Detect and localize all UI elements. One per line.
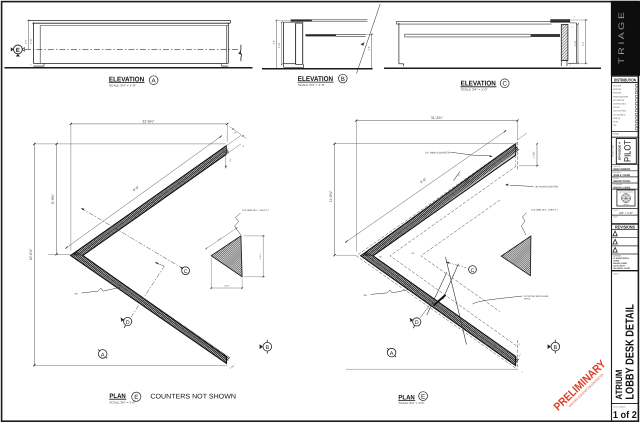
svg-text:ATRIUM: ATRIUM — [614, 369, 624, 399]
svg-text:3/4" = 1'-0": 3/4" = 1'-0" — [619, 211, 633, 215]
svg-text:EPISODE #: EPISODE # — [617, 141, 621, 160]
svg-text:E: E — [421, 394, 425, 401]
svg-text:ART DIRECTOR: ART DIRECTOR — [613, 99, 624, 102]
svg-text:1'-0½": 1'-0½" — [532, 151, 535, 158]
svg-text:DIRECTOR: DIRECTOR — [613, 88, 621, 91]
svg-text:SCALE 3/4" = 1'-0": SCALE 3/4" = 1'-0" — [298, 83, 325, 87]
svg-text:B: B — [553, 345, 557, 351]
svg-text:SET DEC.: SET DEC. — [613, 106, 620, 109]
svg-text:SCALE 3/4" = 1'-0": SCALE 3/4" = 1'-0" — [398, 401, 424, 405]
svg-text:SHEET: SHEET — [613, 272, 619, 275]
svg-text:ROTATING BROCHURE: ROTATING BROCHURE — [524, 295, 549, 298]
svg-text:PRODUCER: PRODUCER — [613, 92, 621, 95]
svg-text:E: E — [16, 47, 20, 54]
svg-text:T R I A G E: T R I A G E — [617, 12, 626, 64]
svg-text:2'-6": 2'-6" — [582, 41, 585, 46]
svg-text:1'-10": 1'-10" — [574, 40, 577, 46]
svg-text:CONSTRUCTION (2): CONSTRUCTION (2) — [613, 103, 626, 106]
svg-text:11'-6¼": 11'-6¼" — [142, 120, 155, 124]
svg-text:DISTRIBUTION: DISTRIBUTION — [614, 78, 636, 83]
svg-text:11'-6¼": 11'-6¼" — [431, 116, 444, 120]
svg-text:11'-6¾": 11'-6¾" — [329, 190, 333, 202]
svg-text:SHOW: SHOW — [613, 133, 619, 136]
svg-text:REVISIONS: REVISIONS — [615, 225, 635, 230]
svg-text:C: C — [471, 268, 475, 274]
svg-text:36" HIGH COUNTER: 36" HIGH COUNTER — [535, 186, 558, 189]
svg-text:1'-5¾": 1'-5¾" — [224, 285, 230, 288]
svg-text:PRODUCTION: PRODUCTION — [612, 144, 615, 157]
svg-text:PAGE NUMBER: PAGE NUMBER — [613, 406, 626, 409]
svg-text:SET LIGHTING (2): SET LIGHTING (2) — [613, 113, 625, 116]
svg-text:PRODUCER: PRODUCER — [613, 84, 621, 87]
svg-text:SCALE 3/4" = 1'-0": SCALE 3/4" = 1'-0" — [461, 87, 488, 91]
svg-text:D: D — [415, 320, 419, 326]
svg-text:COLUMN DET., SHEET 2: COLUMN DET., SHEET 2 — [531, 209, 559, 212]
svg-text:D: D — [126, 320, 130, 326]
svg-text:GRIP (2): GRIP (2) — [613, 117, 620, 120]
svg-text:3'-6": 3'-6" — [24, 39, 27, 44]
svg-text:2'-6": 2'-6" — [367, 46, 370, 51]
svg-text:C: C — [502, 81, 507, 88]
svg-text:B: B — [341, 76, 345, 83]
svg-text:A: A — [390, 351, 394, 357]
svg-text:SCALE 3/4" = 1'-0": SCALE 3/4" = 1'-0" — [109, 83, 136, 87]
svg-text:SP. FX: SP. FX — [613, 121, 619, 124]
svg-text:B: B — [265, 345, 269, 351]
svg-text:45°: 45° — [379, 255, 382, 258]
svg-text:3¼": 3¼" — [229, 158, 232, 162]
svg-text:3'-6": 3'-6" — [272, 40, 275, 45]
svg-text:GROUP OF PHOTOS: GROUP OF PHOTOS — [613, 110, 626, 113]
svg-text:1 of 2: 1 of 2 — [613, 410, 637, 421]
svg-text:LOS ANGELES, CA 90057: LOS ANGELES, CA 90057 — [613, 267, 631, 270]
svg-text:C: C — [184, 269, 188, 275]
svg-text:2'-10": 2'-10" — [30, 38, 33, 44]
svg-text:COUNTERS NOT SHOWN: COUNTERS NOT SHOWN — [150, 394, 236, 401]
svg-text:LOBBY DESK DETAIL: LOBBY DESK DETAIL — [625, 304, 637, 400]
svg-text:90°: 90° — [412, 252, 415, 255]
svg-text:SCALE 3/4" = 1'-0": SCALE 3/4" = 1'-0" — [109, 400, 135, 404]
svg-text:16'-0¾": 16'-0¾" — [29, 248, 33, 261]
svg-text:2'-10": 2'-10" — [278, 42, 281, 48]
svg-text:A: A — [101, 352, 105, 358]
svg-text:RACK: RACK — [524, 297, 531, 300]
svg-text:PILOT: PILOT — [623, 140, 633, 162]
svg-text:5'-9⅜": 5'-9⅜" — [51, 193, 55, 204]
svg-text:2'-0½": 2'-0½" — [259, 253, 262, 259]
svg-text:24" HIGH COUNTER: 24" HIGH COUNTER — [425, 151, 450, 154]
svg-text:PRODUCTION DESIGNER: PRODUCTION DESIGNER — [613, 95, 628, 98]
svg-text:COLUMN DET., SHEET 2: COLUMN DET., SHEET 2 — [242, 209, 270, 212]
